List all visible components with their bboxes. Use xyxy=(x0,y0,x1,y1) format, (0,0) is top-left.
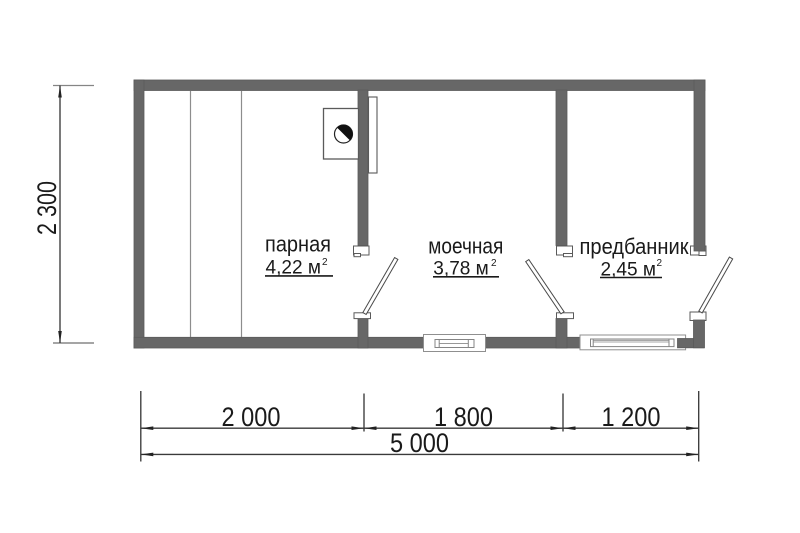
svg-text:2: 2 xyxy=(322,257,328,268)
svg-text:предбанник: предбанник xyxy=(580,234,689,259)
svg-text:5 000: 5 000 xyxy=(390,428,449,458)
svg-text:2 300: 2 300 xyxy=(32,181,62,235)
svg-text:1 200: 1 200 xyxy=(602,402,661,432)
svg-text:2: 2 xyxy=(491,258,497,269)
svg-text:2 000: 2 000 xyxy=(222,402,281,432)
svg-text:парная: парная xyxy=(265,232,331,257)
svg-text:моечная: моечная xyxy=(428,234,503,259)
svg-text:2: 2 xyxy=(657,258,663,269)
